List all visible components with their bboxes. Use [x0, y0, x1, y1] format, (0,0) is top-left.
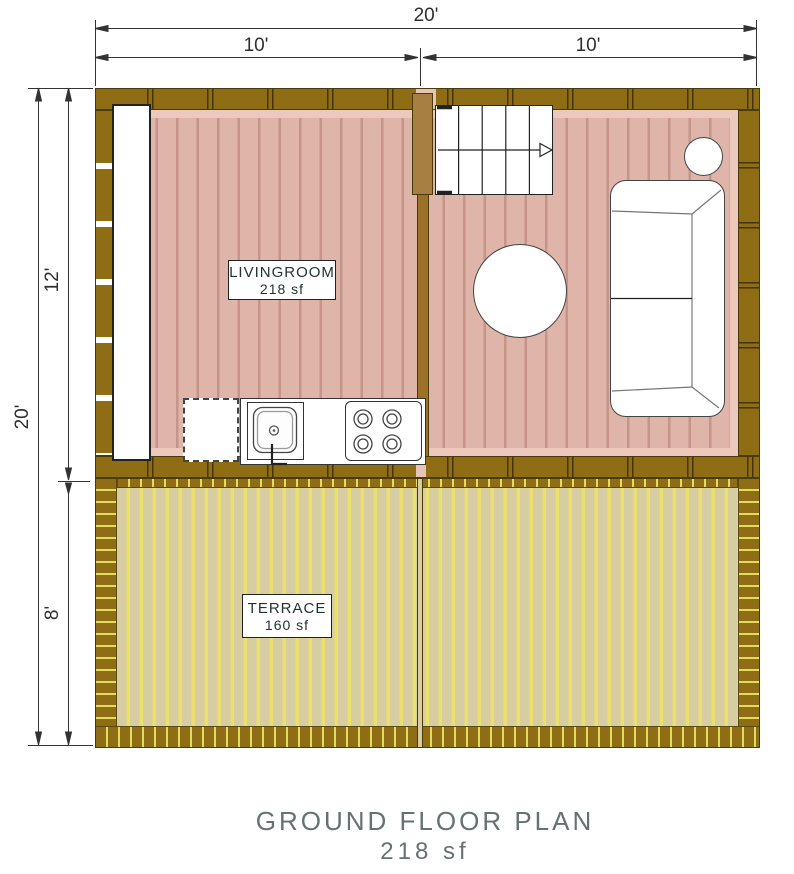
kitchen-sink [247, 402, 304, 460]
stairs [435, 105, 553, 195]
floor-plan-canvas: 20' 10' 10' 20' 12' 8' LIVINGROOM 218 sf… [0, 0, 794, 874]
terrace-edge-east [738, 478, 760, 748]
dimension-label-left-total: 20' [13, 387, 33, 447]
wall-counter [112, 104, 151, 461]
dimension-label-top-right: 10' [558, 36, 618, 56]
terrace-edge-west [95, 478, 117, 748]
terrace-divider [417, 478, 423, 748]
livingroom-name: LIVINGROOM [229, 264, 335, 281]
plan-title: GROUND FLOOR PLAN [60, 806, 790, 837]
round-table [473, 244, 567, 338]
sofa [610, 180, 725, 417]
livingroom-label: LIVINGROOM 218 sf [228, 260, 336, 300]
terrace-edge-south [95, 726, 760, 748]
dimension-label-left-upper: 12' [43, 250, 63, 310]
stove [345, 401, 422, 461]
refrigerator [183, 398, 239, 462]
side-table [684, 137, 723, 176]
plan-title-area: 218 sf [60, 838, 790, 866]
livingroom-area: 218 sf [260, 281, 304, 297]
terrace-name: TERRACE [248, 600, 327, 617]
terrace-area: 160 sf [265, 617, 309, 633]
dimension-label-top-total: 20' [396, 6, 456, 26]
dimension-label-top-left: 10' [226, 36, 286, 56]
dimension-label-left-lower: 8' [43, 583, 63, 643]
terrace-label: TERRACE 160 sf [242, 594, 332, 638]
terrace-floor [117, 488, 738, 726]
stair-post [412, 93, 433, 195]
east-wall [738, 110, 760, 456]
terrace-edge-north [117, 478, 738, 488]
